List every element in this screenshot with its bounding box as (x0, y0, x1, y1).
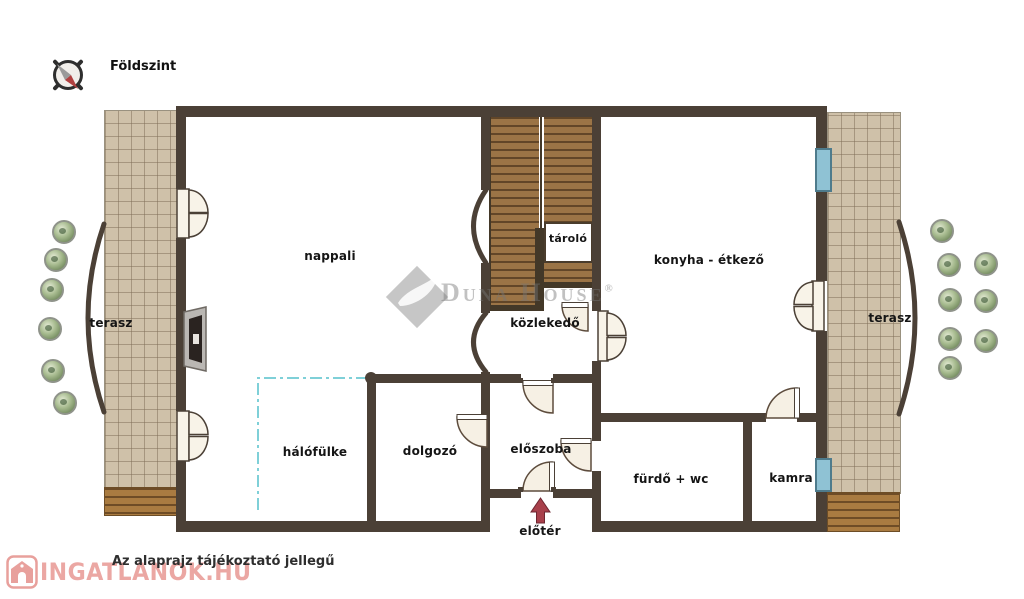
site-logo-icon (6, 555, 38, 594)
door-leaf (457, 415, 487, 420)
arched-opening-stairs (474, 190, 487, 263)
room-label-furdo: fürdő + wc (633, 472, 708, 486)
watermark-brand-text: Duna House (441, 278, 605, 307)
room-label-eloszoba: előszoba (510, 442, 571, 456)
entrance-arrow-icon (531, 498, 550, 523)
door-hinge (551, 378, 556, 383)
room-label-dolgozo: dolgozó (403, 444, 457, 458)
door-kozlekedo-eloszoba (523, 383, 553, 413)
door-hinge (518, 378, 523, 383)
room-label-eloter: előtér (519, 524, 561, 538)
fireplace-icon (184, 307, 206, 371)
room-label-nappali: nappali (304, 249, 356, 263)
registered-mark: ® (605, 282, 613, 294)
watermark-logo-icon (386, 266, 448, 328)
door-nappali-terrace-lower (177, 411, 208, 461)
room-label-tarolo: tároló (549, 232, 587, 245)
door-leaf (795, 388, 800, 418)
room-label-terasz-left: terasz (89, 316, 132, 330)
compass-icon (55, 62, 82, 90)
door-hinge (518, 487, 523, 492)
arched-opening-kozlekedo (474, 313, 487, 372)
watermark-brand: Duna House® (441, 278, 613, 308)
floorplan-canvas: Földszint nappali tároló konyha - étkező… (0, 0, 1024, 599)
floor-title: Földszint (110, 59, 176, 74)
door-kozlekedo-konyha (598, 311, 626, 361)
room-label-halofulke: hálófülke (283, 445, 347, 459)
door-entrance (523, 462, 552, 491)
room-label-konyha: konyha - étkező (654, 253, 764, 267)
disclaimer-text: Az alaprajz tájékoztató jellegű (112, 554, 334, 569)
door-konyha-terrace (794, 281, 824, 331)
door-eloszoba-dolgozo (457, 417, 487, 447)
room-label-terasz-right: terasz (868, 311, 911, 325)
door-leaf (550, 462, 555, 491)
room-label-kozlekedo: közlekedő (510, 316, 580, 330)
door-hinge (551, 487, 556, 492)
wall-junction-dot (365, 372, 377, 384)
door-leaf (523, 381, 553, 386)
room-label-kamra: kamra (769, 471, 813, 485)
door-nappali-terrace-upper (177, 189, 208, 238)
door-konyha-kamra (766, 388, 797, 418)
